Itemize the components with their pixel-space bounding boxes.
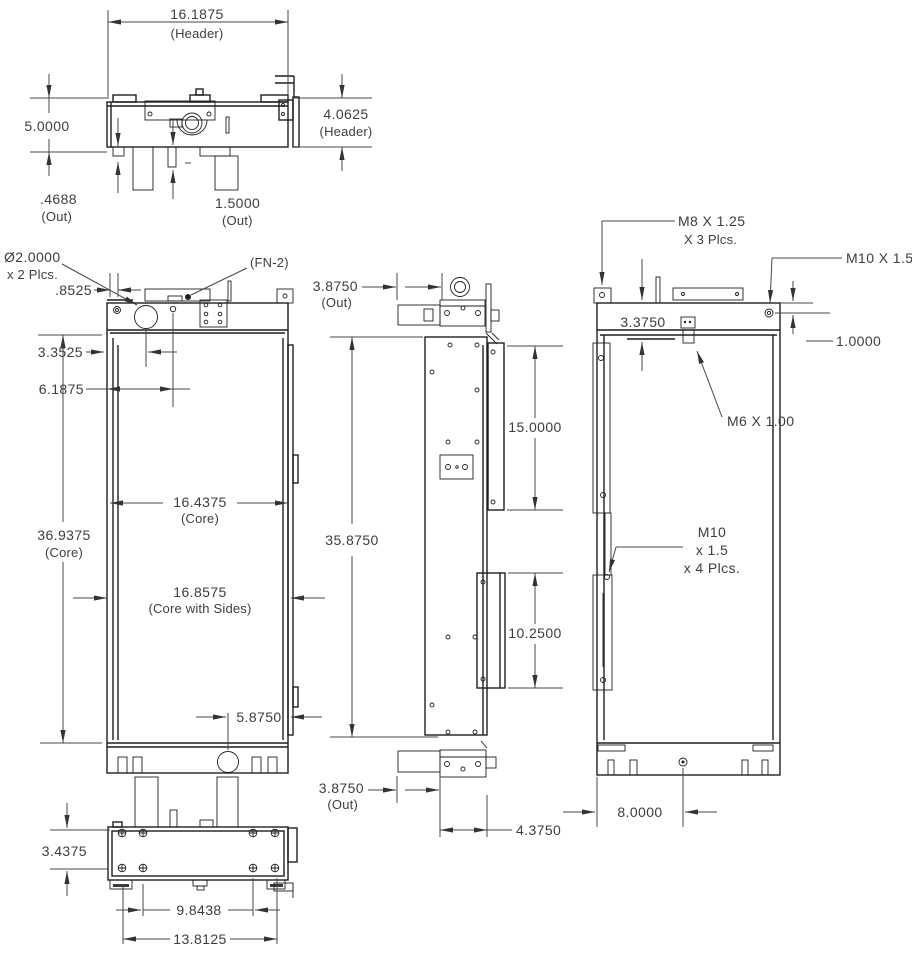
dim-side-depth [440, 795, 512, 837]
dim-top-header-width-value: 16.1875 [170, 6, 223, 22]
dim-top-header-width [108, 10, 288, 99]
filler-hole [135, 306, 158, 329]
m10-side-label-3: x 4 Plcs. [684, 560, 741, 576]
bottom-view-mounting-holes [118, 829, 279, 872]
dim-front-core-sides-width-value: 16.8575 [173, 584, 226, 600]
rear-view-side-rail [593, 343, 612, 690]
dim-front-drain-offset-value: 5.8750 [236, 709, 281, 725]
dim-rear-drain-offset-value: 8.0000 [617, 804, 662, 820]
dim-side-out-bottom-note: (Out) [327, 797, 358, 812]
dim-side-out-top-value: 3.8750 [313, 278, 358, 294]
dim-front-core-width-value: 16.4375 [173, 494, 226, 510]
dim-side-out-top-note: (Out) [321, 295, 352, 310]
dim-rear-insert-offset [775, 281, 833, 341]
dim-top-header-depth-note: (Header) [320, 124, 373, 139]
dim-side-out-bottom [368, 776, 440, 837]
bottom-view-feet [110, 880, 293, 898]
dim-side-depth-value: 4.3750 [516, 822, 561, 838]
leader-m6 [697, 351, 722, 417]
dim-side-overall-height-value: 35.8750 [325, 532, 378, 548]
front-view: Ø2.0000 x 2 Plcs. (FN-2) .8525 3.3525 6.… [4, 249, 325, 773]
fn2-label: (FN-2) [250, 255, 289, 270]
drawing-canvas: 16.1875 (Header) 5.0000 4.0625 (Header) … [0, 0, 912, 960]
dim-rear-insert-offset-value: 1.0000 [836, 333, 881, 349]
dim-side-out-top [362, 273, 442, 300]
bottom-view-pipes [135, 777, 238, 827]
dim-front-core-height-note: (Core) [45, 545, 83, 560]
dim-top-header-depth-value: 4.0625 [323, 106, 368, 122]
dim-top-height-value: 5.0000 [24, 118, 69, 134]
dim-front-hole-offset-value: 6.1875 [39, 381, 84, 397]
dim-top-header-width-note: (Header) [171, 26, 224, 41]
dim-side-lower-bracket-value: 10.2500 [508, 625, 561, 641]
dim-top-out-pipe-value: 1.5000 [215, 195, 260, 211]
lifting-eye [451, 278, 470, 297]
dim-front-core-height-value: 36.9375 [37, 527, 90, 543]
dim-top-out-pipe-note: (Out) [222, 213, 253, 228]
leader-m10-side [609, 547, 683, 572]
front-view-outline [107, 300, 298, 773]
dim-front-filler-dia-value: Ø2.0000 [4, 249, 61, 265]
rear-view-bottom-tank [598, 745, 773, 775]
dim-top-out-tab-note: (Out) [41, 209, 72, 224]
dim-front-filler-offset-value: 3.3525 [38, 344, 83, 360]
side-view-outline [425, 337, 505, 735]
bottom-view: 3.4375 9.8438 13.8125 [42, 777, 297, 947]
m10-insert-hole [765, 309, 773, 317]
leader-m10-top [770, 258, 842, 303]
rear-view-top-details [594, 277, 773, 343]
dim-rear-tank-depth-value: 3.3750 [620, 314, 665, 330]
top-view-pipes [113, 147, 238, 190]
bottom-view-outline [108, 822, 297, 880]
dim-front-core-width-note: (Core) [181, 511, 219, 526]
m8-thread-label: M8 X 1.25 [678, 213, 745, 229]
rear-view-outline [597, 303, 780, 775]
fn2-fastener-dot [185, 294, 191, 300]
dim-front-filler-dia-note: x 2 Plcs. [7, 267, 58, 282]
m10-top-thread-label: M10 X 1.5 [846, 250, 912, 266]
lower-mount-plate [477, 573, 505, 688]
top-view-outline [107, 76, 299, 147]
dim-side-upper-bracket-value: 15.0000 [508, 419, 561, 435]
m6-thread-label: M6 X 1.00 [727, 413, 794, 429]
m8-thread-note: X 3 Plcs. [684, 232, 737, 247]
m6-clip [681, 317, 695, 328]
drain-hole-front [218, 752, 239, 773]
filler-neck-top [182, 113, 202, 133]
front-view-bottom-details [118, 752, 277, 774]
leader-fn2 [191, 268, 247, 295]
dim-side-out-bottom-value: 3.8750 [319, 780, 364, 796]
m10-side-label-2: x 1.5 [696, 542, 728, 558]
rear-view: M8 X 1.25 X 3 Plcs. M10 X 1.5 3.3750 1.0… [563, 213, 912, 827]
outlet-pipe-top [398, 305, 440, 325]
leader-m8 [602, 221, 675, 285]
top-view: 16.1875 (Header) 5.0000 4.0625 (Header) … [24, 6, 372, 228]
upper-mount-plate [488, 343, 504, 510]
radiator-technical-drawing: 16.1875 (Header) 5.0000 4.0625 (Header) … [0, 0, 912, 960]
dim-bottom-hole-span-outer-value: 13.8125 [173, 931, 226, 947]
front-view-top-details [114, 281, 294, 329]
m10-side-label-1: M10 [698, 524, 726, 540]
side-view: 3.8750 (Out) 35.8750 15.0000 10.2500 [313, 273, 563, 838]
side-view-holes [430, 343, 495, 734]
dim-top-out-tab-value: .4688 [40, 191, 77, 207]
dim-front-hole-offset [86, 313, 190, 407]
dim-front-side-offset-value: .8525 [55, 282, 92, 298]
dim-top-header-depth [293, 74, 372, 171]
outlet-pipe-bottom [398, 751, 440, 772]
dim-bottom-hole-span-inner-value: 9.8438 [176, 902, 221, 918]
dim-bottom-depth-value: 3.4375 [42, 843, 87, 859]
side-view-bottom-assembly [398, 741, 496, 777]
dim-front-core-sides-width-note: (Core with Sides) [148, 601, 251, 616]
